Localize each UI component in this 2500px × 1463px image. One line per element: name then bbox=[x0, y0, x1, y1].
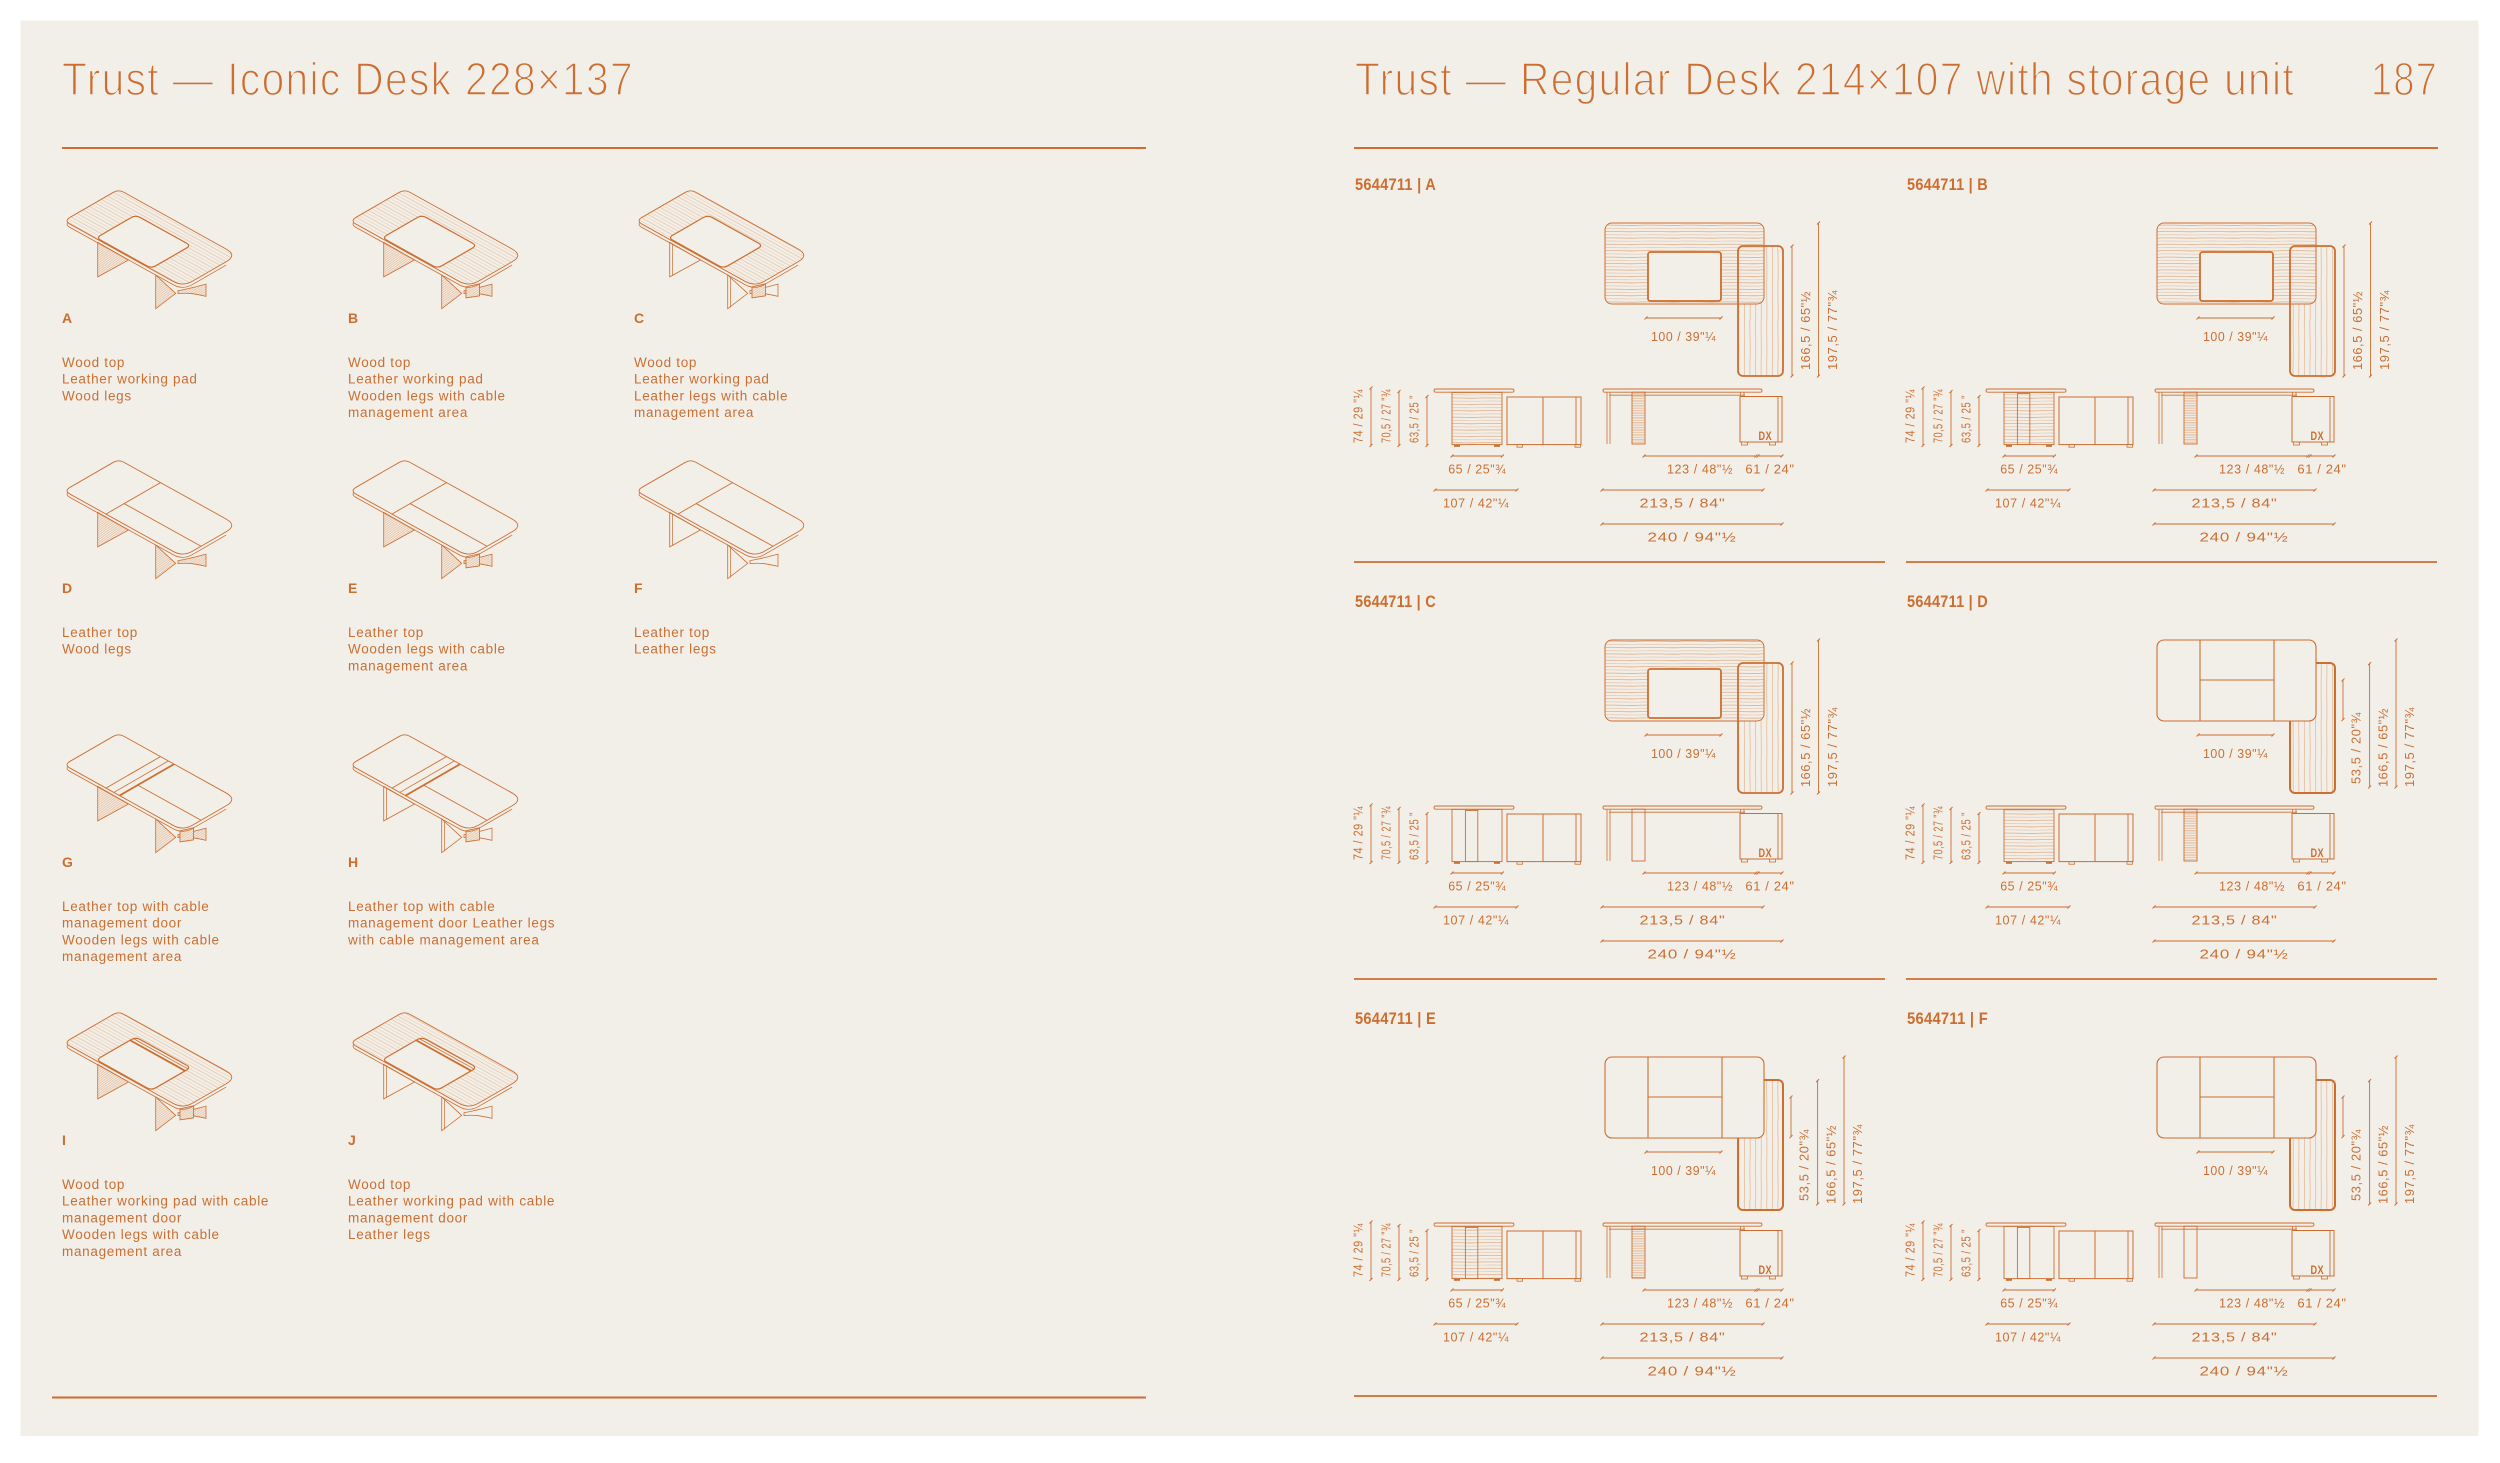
svg-text:Wood top: Wood top bbox=[348, 1177, 411, 1192]
svg-text:123 / 48"½: 123 / 48"½ bbox=[1667, 1296, 1733, 1311]
svg-text:74 / 29 "¼: 74 / 29 "¼ bbox=[1903, 1223, 1918, 1277]
svg-text:65 / 25"¾: 65 / 25"¾ bbox=[2000, 1296, 2058, 1311]
svg-text:197,5 / 77"¾: 197,5 / 77"¾ bbox=[1850, 1124, 1865, 1204]
svg-text:61 / 24": 61 / 24" bbox=[1745, 879, 1794, 894]
svg-text:Leather working pad with cable: Leather working pad with cable bbox=[62, 1194, 269, 1209]
svg-text:70,5 / 27 "¾: 70,5 / 27 "¾ bbox=[1379, 1223, 1394, 1277]
svg-text:240 / 94"½: 240 / 94"½ bbox=[2200, 947, 2289, 962]
svg-text:I: I bbox=[62, 1132, 66, 1148]
svg-text:65 / 25"¾: 65 / 25"¾ bbox=[2000, 879, 2058, 894]
svg-text:123 / 48"½: 123 / 48"½ bbox=[1667, 879, 1733, 894]
svg-text:240 / 94"½: 240 / 94"½ bbox=[2200, 530, 2289, 545]
svg-text:DX: DX bbox=[2311, 431, 2325, 443]
svg-text:213,5 / 84": 213,5 / 84" bbox=[2192, 913, 2278, 928]
svg-text:70,5 / 27 "¾: 70,5 / 27 "¾ bbox=[1931, 389, 1946, 443]
svg-text:240 / 94"½: 240 / 94"½ bbox=[2200, 1364, 2289, 1379]
svg-text:107 / 42"¼: 107 / 42"¼ bbox=[1995, 913, 2061, 928]
svg-text:B: B bbox=[348, 310, 359, 326]
svg-text:70,5 / 27 "¾: 70,5 / 27 "¾ bbox=[1931, 806, 1946, 860]
svg-text:63,5 / 25 ": 63,5 / 25 " bbox=[1959, 395, 1974, 443]
svg-text:213,5 / 84": 213,5 / 84" bbox=[2192, 496, 2278, 511]
svg-text:Leather working pad: Leather working pad bbox=[348, 372, 484, 387]
svg-text:65 / 25"¾: 65 / 25"¾ bbox=[1448, 879, 1506, 894]
svg-text:management door: management door bbox=[62, 916, 182, 931]
svg-text:197,5 / 77"¾: 197,5 / 77"¾ bbox=[2402, 1124, 2417, 1204]
svg-text:123 / 48"½: 123 / 48"½ bbox=[2219, 462, 2285, 477]
svg-text:5644711 | D: 5644711 | D bbox=[1907, 592, 1988, 611]
svg-text:61 / 24": 61 / 24" bbox=[1745, 1296, 1794, 1311]
svg-text:65 / 25"¾: 65 / 25"¾ bbox=[1448, 462, 1506, 477]
svg-text:DX: DX bbox=[1759, 431, 1773, 443]
svg-text:70,5 / 27 "¾: 70,5 / 27 "¾ bbox=[1379, 806, 1394, 860]
svg-text:53,5 / 20"¾: 53,5 / 20"¾ bbox=[1797, 1129, 1812, 1201]
svg-text:C: C bbox=[634, 310, 645, 326]
svg-text:Leather legs: Leather legs bbox=[634, 642, 717, 657]
svg-text:213,5 / 84": 213,5 / 84" bbox=[2192, 1330, 2278, 1345]
svg-text:197,5 / 77"¾: 197,5 / 77"¾ bbox=[2402, 707, 2417, 787]
svg-text:166,5 / 65"½: 166,5 / 65"½ bbox=[1798, 291, 1813, 370]
svg-text:63,5 / 25 ": 63,5 / 25 " bbox=[1407, 395, 1422, 443]
svg-text:Leather working pad: Leather working pad bbox=[62, 372, 198, 387]
svg-text:213,5 / 84": 213,5 / 84" bbox=[1640, 496, 1726, 511]
svg-text:management area: management area bbox=[62, 949, 182, 964]
svg-text:5644711 | B: 5644711 | B bbox=[1907, 175, 1988, 194]
svg-text:Leather top: Leather top bbox=[62, 625, 138, 640]
svg-text:J: J bbox=[348, 1132, 356, 1148]
svg-text:197,5 / 77"¾: 197,5 / 77"¾ bbox=[1825, 707, 1840, 787]
svg-text:240 / 94"½: 240 / 94"½ bbox=[1648, 530, 1737, 545]
svg-text:Leather legs: Leather legs bbox=[348, 1227, 431, 1242]
svg-text:DX: DX bbox=[2311, 848, 2325, 860]
svg-text:213,5 / 84": 213,5 / 84" bbox=[1640, 913, 1726, 928]
svg-text:74 / 29 "¼: 74 / 29 "¼ bbox=[1903, 389, 1918, 443]
svg-text:74 / 29 "¼: 74 / 29 "¼ bbox=[1903, 806, 1918, 860]
svg-text:107 / 42"¼: 107 / 42"¼ bbox=[1443, 1330, 1509, 1345]
svg-text:65 / 25"¾: 65 / 25"¾ bbox=[2000, 462, 2058, 477]
svg-text:70,5 / 27 "¾: 70,5 / 27 "¾ bbox=[1379, 389, 1394, 443]
svg-text:70,5 / 27 "¾: 70,5 / 27 "¾ bbox=[1931, 1223, 1946, 1277]
svg-text:Wood top: Wood top bbox=[634, 355, 697, 370]
svg-text:management area: management area bbox=[634, 405, 754, 420]
svg-text:107 / 42"¼: 107 / 42"¼ bbox=[1995, 496, 2061, 511]
svg-text:240 / 94"½: 240 / 94"½ bbox=[1648, 1364, 1737, 1379]
svg-text:100 / 39"¼: 100 / 39"¼ bbox=[1651, 1163, 1716, 1178]
svg-text:DX: DX bbox=[1759, 1265, 1773, 1277]
svg-text:A: A bbox=[62, 310, 73, 326]
svg-text:5644711 | C: 5644711 | C bbox=[1355, 592, 1436, 611]
svg-text:D: D bbox=[62, 580, 73, 596]
svg-text:Wood top: Wood top bbox=[348, 355, 411, 370]
svg-text:166,5 / 65"½: 166,5 / 65"½ bbox=[2375, 708, 2390, 787]
svg-text:Leather working pad with cable: Leather working pad with cable bbox=[348, 1194, 555, 1209]
svg-text:197,5 / 77"¾: 197,5 / 77"¾ bbox=[1825, 290, 1840, 370]
svg-text:management area: management area bbox=[348, 405, 468, 420]
svg-text:107 / 42"¼: 107 / 42"¼ bbox=[1443, 496, 1509, 511]
svg-text:DX: DX bbox=[2311, 1265, 2325, 1277]
svg-text:Leather top with cable: Leather top with cable bbox=[348, 899, 496, 914]
svg-text:100 / 39"¼: 100 / 39"¼ bbox=[1651, 329, 1716, 344]
svg-text:management door: management door bbox=[348, 1210, 468, 1225]
svg-text:63,5 / 25 ": 63,5 / 25 " bbox=[1959, 1229, 1974, 1277]
svg-text:Leather legs with cable: Leather legs with cable bbox=[634, 388, 788, 403]
svg-text:74 / 29 "¼: 74 / 29 "¼ bbox=[1351, 806, 1366, 860]
svg-text:Wood legs: Wood legs bbox=[62, 642, 132, 657]
svg-text:61 / 24": 61 / 24" bbox=[2297, 1296, 2346, 1311]
svg-text:with cable management area: with cable management area bbox=[347, 932, 540, 947]
svg-text:Wooden legs with cable: Wooden legs with cable bbox=[348, 642, 506, 657]
svg-text:Trust — Regular Desk 214×107 w: Trust — Regular Desk 214×107 with storag… bbox=[1355, 53, 2295, 105]
svg-text:management area: management area bbox=[348, 658, 468, 673]
svg-text:management door Leather legs: management door Leather legs bbox=[348, 916, 555, 931]
svg-text:H: H bbox=[348, 854, 359, 870]
svg-text:53,5 / 20"¾: 53,5 / 20"¾ bbox=[2349, 712, 2364, 784]
svg-text:management area: management area bbox=[62, 1244, 182, 1259]
svg-text:100 / 39"¼: 100 / 39"¼ bbox=[2203, 1163, 2268, 1178]
svg-text:61 / 24": 61 / 24" bbox=[1745, 462, 1794, 477]
svg-text:Wooden legs with cable: Wooden legs with cable bbox=[62, 932, 220, 947]
svg-text:5644711 | E: 5644711 | E bbox=[1355, 1009, 1436, 1028]
svg-text:187: 187 bbox=[2371, 53, 2438, 105]
svg-text:Wood top: Wood top bbox=[62, 355, 125, 370]
svg-text:53,5 / 20"¾: 53,5 / 20"¾ bbox=[2349, 1129, 2364, 1201]
svg-text:Wooden legs with cable: Wooden legs with cable bbox=[348, 388, 506, 403]
svg-text:E: E bbox=[348, 580, 358, 596]
svg-text:63,5 / 25 ": 63,5 / 25 " bbox=[1407, 812, 1422, 860]
svg-text:Leather top: Leather top bbox=[348, 625, 424, 640]
svg-text:Trust — Iconic Desk 228×137: Trust — Iconic Desk 228×137 bbox=[62, 53, 634, 105]
svg-text:61 / 24": 61 / 24" bbox=[2297, 879, 2346, 894]
svg-text:Leather working pad: Leather working pad bbox=[634, 372, 770, 387]
svg-text:74 / 29 "¼: 74 / 29 "¼ bbox=[1351, 1223, 1366, 1277]
svg-text:Leather top: Leather top bbox=[634, 625, 710, 640]
svg-text:123 / 48"½: 123 / 48"½ bbox=[1667, 462, 1733, 477]
svg-text:Leather top with cable: Leather top with cable bbox=[62, 899, 210, 914]
svg-text:61 / 24": 61 / 24" bbox=[2297, 462, 2346, 477]
svg-text:5644711 | F: 5644711 | F bbox=[1907, 1009, 1988, 1028]
svg-text:DX: DX bbox=[1759, 848, 1773, 860]
svg-text:G: G bbox=[62, 854, 73, 870]
svg-text:100 / 39"¼: 100 / 39"¼ bbox=[2203, 329, 2268, 344]
svg-text:63,5 / 25 ": 63,5 / 25 " bbox=[1407, 1229, 1422, 1277]
svg-text:197,5 / 77"¾: 197,5 / 77"¾ bbox=[2377, 290, 2392, 370]
svg-text:Wooden legs with cable: Wooden legs with cable bbox=[62, 1227, 220, 1242]
svg-text:166,5 / 65"½: 166,5 / 65"½ bbox=[1823, 1125, 1838, 1204]
svg-text:100 / 39"¼: 100 / 39"¼ bbox=[2203, 746, 2268, 761]
svg-text:Wood top: Wood top bbox=[62, 1177, 125, 1192]
svg-text:166,5 / 65"½: 166,5 / 65"½ bbox=[1798, 708, 1813, 787]
svg-text:166,5 / 65"½: 166,5 / 65"½ bbox=[2350, 291, 2365, 370]
svg-text:123 / 48"½: 123 / 48"½ bbox=[2219, 1296, 2285, 1311]
svg-text:166,5 / 65"½: 166,5 / 65"½ bbox=[2375, 1125, 2390, 1204]
svg-text:63,5 / 25 ": 63,5 / 25 " bbox=[1959, 812, 1974, 860]
svg-text:107 / 42"¼: 107 / 42"¼ bbox=[1443, 913, 1509, 928]
svg-text:213,5 / 84": 213,5 / 84" bbox=[1640, 1330, 1726, 1345]
svg-text:F: F bbox=[634, 580, 643, 596]
svg-text:74 / 29 "¼: 74 / 29 "¼ bbox=[1351, 389, 1366, 443]
svg-text:100 / 39"¼: 100 / 39"¼ bbox=[1651, 746, 1716, 761]
svg-text:240 / 94"½: 240 / 94"½ bbox=[1648, 947, 1737, 962]
svg-text:management door: management door bbox=[62, 1210, 182, 1225]
svg-text:123 / 48"½: 123 / 48"½ bbox=[2219, 879, 2285, 894]
svg-text:Wood legs: Wood legs bbox=[62, 388, 132, 403]
svg-text:107 / 42"¼: 107 / 42"¼ bbox=[1995, 1330, 2061, 1345]
svg-text:65 / 25"¾: 65 / 25"¾ bbox=[1448, 1296, 1506, 1311]
svg-text:5644711 | A: 5644711 | A bbox=[1355, 175, 1436, 194]
